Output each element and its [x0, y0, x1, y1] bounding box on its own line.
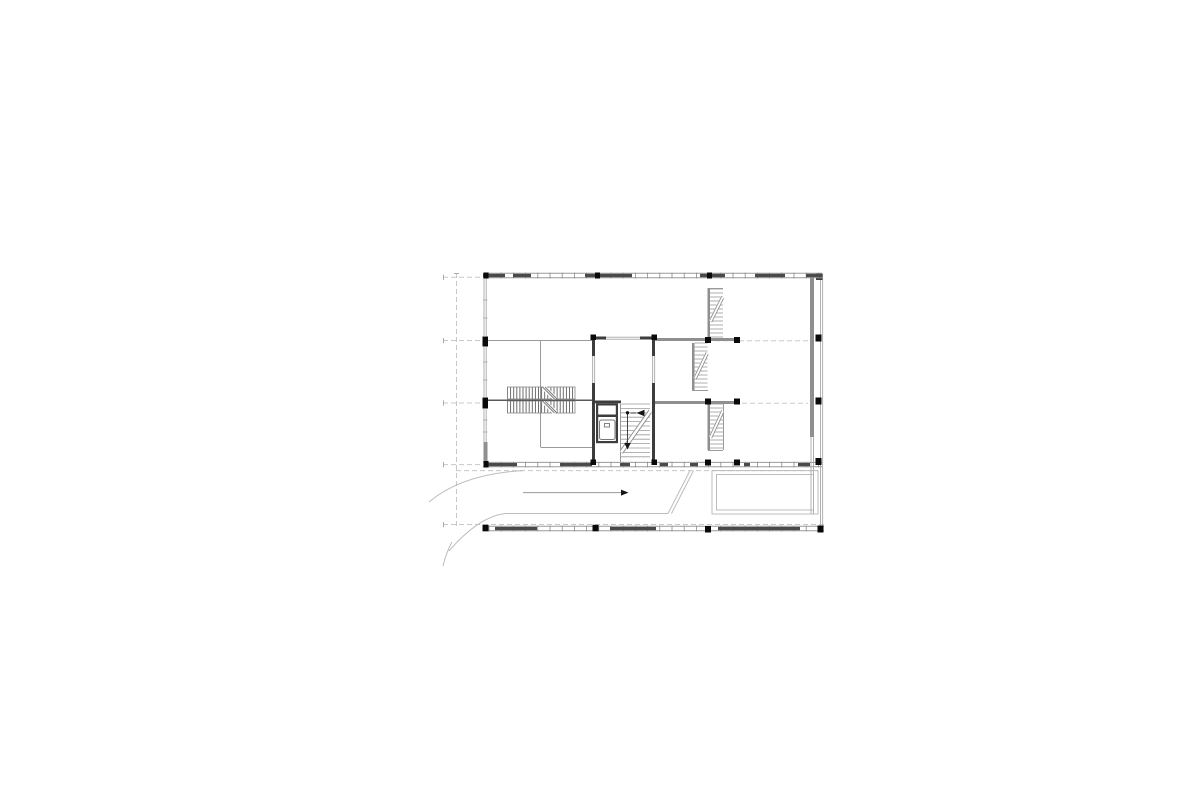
gray-walls-layer: [484, 276, 815, 465]
floor-plan-drawing: [0, 0, 1200, 804]
floor-plan-page: [0, 0, 1200, 804]
drive-direction-arrow: [523, 490, 629, 496]
site-driveway-layer: [429, 471, 818, 566]
partition-lines-layer: [487, 289, 724, 463]
stairs-layer: [485, 289, 724, 457]
